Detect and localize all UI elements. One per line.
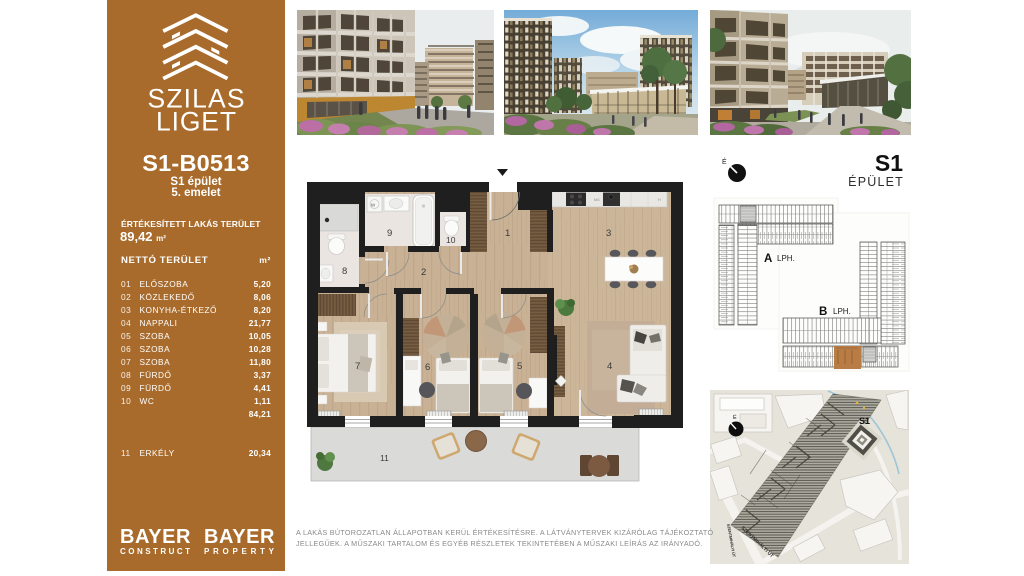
svg-text:BAYER: BAYER <box>120 526 191 548</box>
svg-text:4: 4 <box>607 361 612 372</box>
svg-text:H: H <box>658 198 661 202</box>
svg-text:S1: S1 <box>859 416 870 426</box>
svg-text:2: 2 <box>421 267 426 278</box>
svg-text:A: A <box>764 253 772 265</box>
svg-text:É: É <box>722 157 727 166</box>
svg-text:1: 1 <box>505 228 510 239</box>
svg-text:LPH.: LPH. <box>777 254 795 263</box>
svg-text:É: É <box>733 414 737 421</box>
svg-text:8: 8 <box>342 266 347 277</box>
svg-text:6: 6 <box>425 362 430 373</box>
svg-text:10: 10 <box>446 235 456 245</box>
svg-text:3: 3 <box>606 228 611 239</box>
svg-text:PROPERTY: PROPERTY <box>204 547 275 556</box>
svg-text:9: 9 <box>387 228 392 239</box>
svg-text:CONSTRUCT: CONSTRUCT <box>120 547 190 556</box>
svg-text:11: 11 <box>380 453 389 463</box>
svg-text:M: M <box>371 203 375 208</box>
svg-text:5: 5 <box>517 361 522 372</box>
svg-text:7: 7 <box>355 361 360 372</box>
svg-text:B: B <box>819 306 827 318</box>
svg-text:LPH.: LPH. <box>833 307 851 316</box>
svg-text:MG: MG <box>594 198 600 202</box>
svg-text:BAYER: BAYER <box>204 526 275 548</box>
svg-text:LIGET: LIGET <box>156 107 236 137</box>
